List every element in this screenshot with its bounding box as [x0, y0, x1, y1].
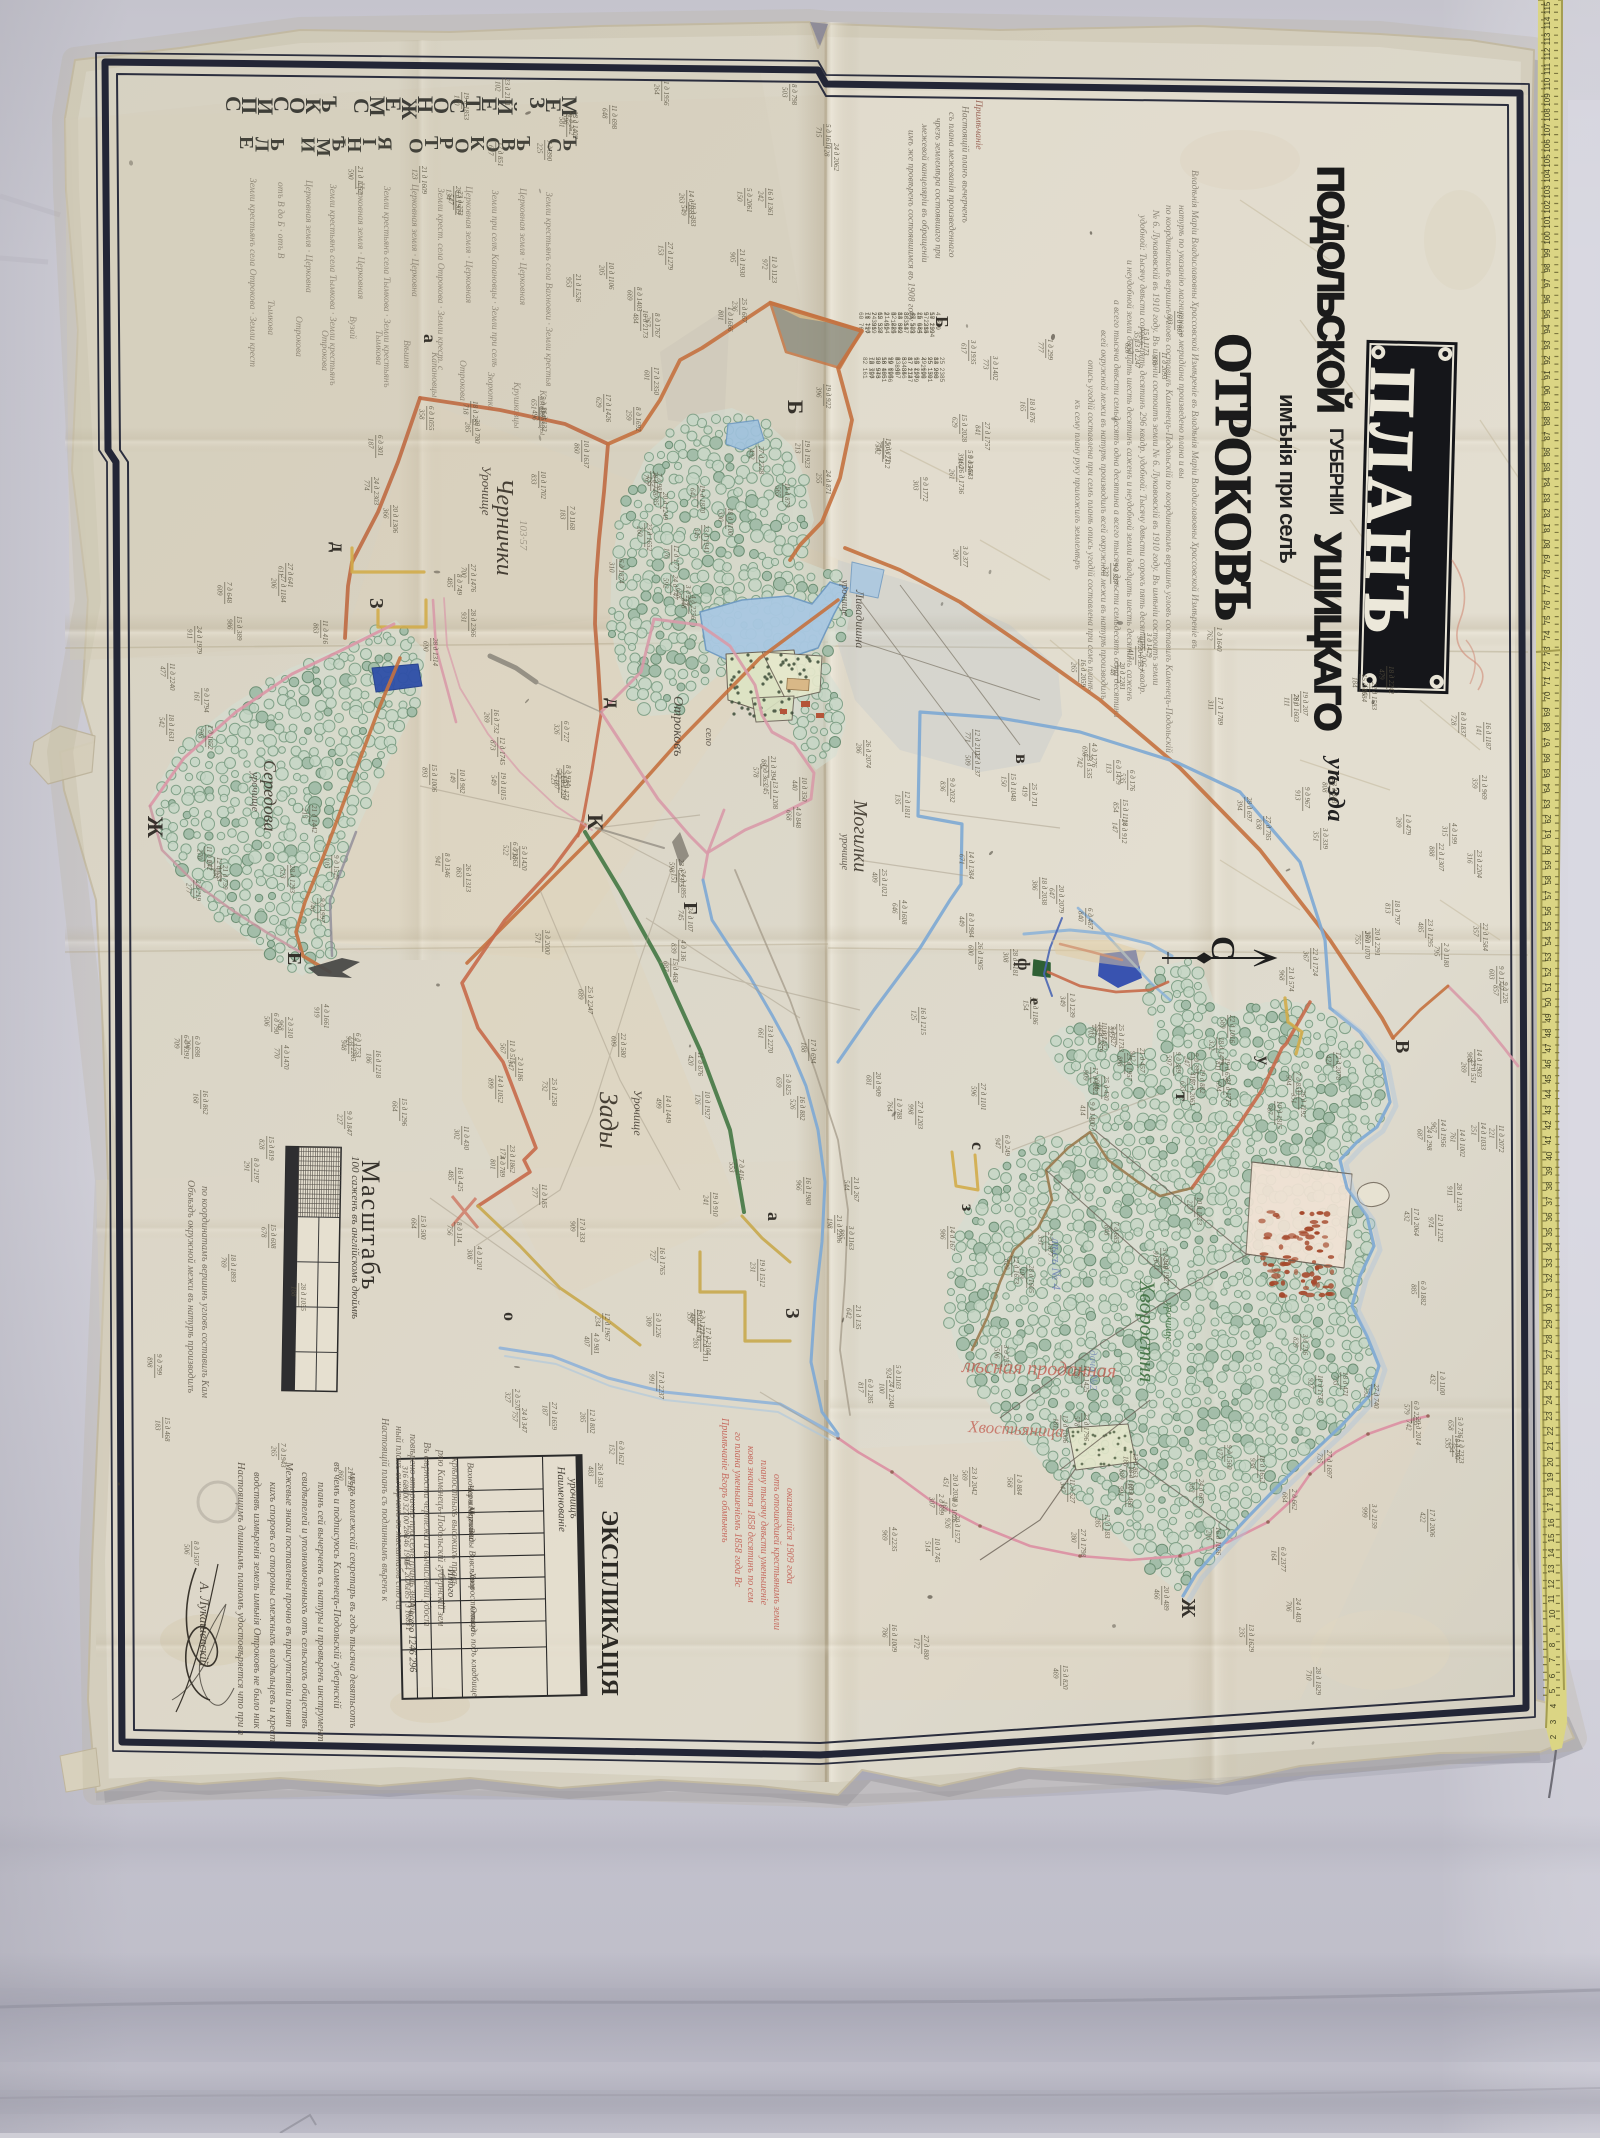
svg-text:10 д 1106: 10 д 1106 — [607, 262, 615, 290]
svg-text:11 д 2240: 11 д 2240 — [168, 663, 176, 691]
svg-text:671: 671 — [958, 854, 966, 865]
svg-text:549: 549 — [490, 775, 498, 786]
svg-text:81: 81 — [1543, 523, 1552, 532]
svg-text:94: 94 — [1543, 324, 1552, 333]
svg-text:съ плана межеванія произведенн: съ плана межеванія произведеннаго — [946, 112, 957, 258]
svg-text:76: 76 — [1543, 600, 1552, 609]
svg-text:3 д 235: 3 д 235 — [1002, 1344, 1010, 1367]
svg-text:706: 706 — [1285, 1601, 1293, 1612]
svg-text:в: в — [1012, 754, 1032, 764]
svg-text:1 д 299: 1 д 299 — [1046, 339, 1054, 361]
svg-text:357: 357 — [1472, 925, 1480, 937]
svg-text:414: 414 — [1079, 1105, 1087, 1116]
svg-text:12 д 2078: 12 д 2078 — [1334, 1052, 1342, 1081]
svg-text:115: 115 — [1543, 1, 1552, 14]
svg-text:27 д 1697: 27 д 1697 — [1325, 1450, 1333, 1479]
svg-text:27 д 1659: 27 д 1659 — [550, 1402, 558, 1431]
svg-text:95 179: 95 179 — [926, 357, 933, 379]
svg-text:39: 39 — [1545, 1166, 1554, 1175]
svg-text:13 д 2270: 13 д 2270 — [766, 1025, 774, 1054]
svg-text:17 д 694: 17 д 694 — [809, 1039, 817, 1064]
svg-text:23 д 2375: 23 д 2375 — [677, 859, 685, 888]
svg-text:ЭКСПЛИКАЦІЯ: ЭКСПЛИКАЦІЯ — [596, 1510, 622, 1696]
svg-text:421: 421 — [1325, 1055, 1333, 1066]
svg-text:123: 123 — [411, 169, 419, 180]
svg-text:898: 898 — [146, 1357, 154, 1368]
svg-text:урочище: урочище — [1163, 1301, 1175, 1342]
svg-text:811: 811 — [1214, 1061, 1222, 1071]
svg-text:21 д 135: 21 д 135 — [854, 1305, 862, 1330]
svg-text:Отводъ подъ кладбище: Отводъ подъ кладбище — [469, 1606, 481, 1696]
svg-text:4: 4 — [1549, 1703, 1558, 1708]
svg-text:477: 477 — [159, 666, 167, 677]
svg-text:687: 687 — [662, 961, 670, 972]
svg-text:15 д 2028: 15 д 2028 — [960, 414, 968, 443]
svg-text:22: 22 — [1546, 1426, 1555, 1435]
svg-text:15 д 820: 15 д 820 — [1061, 1665, 1069, 1690]
svg-text:658: 658 — [1447, 1420, 1455, 1431]
svg-text:17 д 2064: 17 д 2064 — [1412, 1208, 1420, 1237]
svg-text:20 д 1572: 20 д 1572 — [953, 1515, 961, 1544]
svg-text:21 д 574: 21 д 574 — [1287, 967, 1295, 992]
svg-text:187: 187 — [541, 1405, 549, 1416]
svg-text:986: 986 — [939, 1229, 947, 1240]
svg-text:177: 177 — [1216, 1448, 1224, 1459]
svg-text:565: 565 — [774, 486, 782, 497]
svg-text:26 д 1313: 26 д 1313 — [464, 864, 472, 893]
svg-text:259: 259 — [625, 410, 633, 421]
svg-text:11 д 2072: 11 д 2072 — [1497, 1125, 1505, 1153]
svg-text:205: 205 — [598, 265, 606, 276]
svg-text:83: 83 — [1543, 493, 1552, 502]
svg-text:251: 251 — [1470, 1125, 1478, 1136]
svg-text:280: 280 — [1070, 1532, 1078, 1543]
svg-text:3 д 1163: 3 д 1163 — [847, 1225, 855, 1251]
svg-text:579: 579 — [1403, 1404, 1411, 1415]
svg-text:188: 188 — [800, 1042, 808, 1053]
svg-text:25 д 1733: 25 д 1733 — [1117, 1024, 1125, 1053]
svg-text:всей окружной межи въ натурѣ п: всей окружной межи въ натурѣ производилъ… — [1098, 330, 1109, 700]
svg-text:20 д 2112: 20 д 2112 — [883, 441, 891, 469]
svg-text:З: З — [781, 1308, 803, 1319]
svg-text:25 д 1258: 25 д 1258 — [550, 1078, 558, 1107]
svg-text:50 576: 50 576 — [874, 357, 881, 379]
svg-text:19 д 207: 19 д 207 — [1301, 691, 1309, 716]
svg-text:8 д 934: 8 д 934 — [564, 765, 572, 787]
svg-text:Отрокова: Отрокова — [293, 316, 303, 357]
svg-text:13 д 1006: 13 д 1006 — [1061, 1415, 1069, 1444]
svg-text:8 д 1767: 8 д 1767 — [653, 313, 661, 338]
svg-text:22 д 1016: 22 д 1016 — [1228, 1015, 1236, 1044]
svg-text:126: 126 — [694, 1094, 702, 1105]
svg-text:УШИЦКАГО: УШИЦКАГО — [1307, 533, 1348, 731]
svg-text:9 д 1543: 9 д 1543 — [966, 455, 974, 480]
svg-text:885: 885 — [838, 1229, 846, 1240]
svg-text:24 д 2303: 24 д 2303 — [372, 477, 380, 506]
svg-text:67: 67 — [1543, 737, 1552, 746]
svg-text:6 д 1479: 6 д 1479 — [1114, 760, 1122, 785]
svg-text:349: 349 — [1059, 995, 1067, 1007]
svg-text:6 д 698: 6 д 698 — [193, 1036, 201, 1058]
svg-text:28 д 2366: 28 д 2366 — [469, 609, 477, 638]
svg-text:647: 647 — [1048, 888, 1056, 899]
svg-text:3 д 2159: 3 д 2159 — [1370, 1503, 1378, 1529]
svg-text:213: 213 — [301, 808, 309, 819]
svg-text:14 д 1033: 14 д 1033 — [1479, 1122, 1487, 1151]
svg-text:Хворостня: Хворостня — [1135, 1279, 1160, 1383]
svg-text:16 д 882: 16 д 882 — [798, 1096, 806, 1121]
svg-text:358: 358 — [418, 408, 426, 420]
svg-text:152: 152 — [608, 1444, 616, 1455]
svg-text:770: 770 — [273, 1048, 281, 1059]
svg-text:8 д 1837: 8 д 1837 — [1459, 712, 1467, 737]
svg-text:23 д 1862: 23 д 1862 — [508, 1145, 516, 1174]
svg-text:681: 681 — [865, 1075, 873, 1086]
svg-text:396: 396 — [815, 386, 823, 398]
svg-text:4 д 981: 4 д 981 — [592, 1333, 600, 1354]
svg-text:100: 100 — [1543, 231, 1552, 245]
svg-text:2 д 1180: 2 д 1180 — [1442, 943, 1450, 968]
svg-text:отъ отошедшей крестьянамъ земл: отъ отошедшей крестьянамъ земли — [771, 1474, 782, 1630]
svg-text:149: 149 — [449, 772, 457, 783]
svg-text:485: 485 — [1417, 922, 1425, 933]
svg-text:Масштабъ: Масштабъ — [356, 1160, 385, 1291]
svg-text:с: с — [968, 1142, 988, 1150]
svg-text:941: 941 — [434, 856, 442, 867]
svg-text:2 д 1186: 2 д 1186 — [516, 1057, 524, 1082]
svg-text:795: 795 — [1433, 946, 1441, 957]
svg-text:111: 111 — [1543, 62, 1552, 75]
svg-text:345: 345 — [693, 527, 701, 539]
svg-text:173: 173 — [499, 1148, 507, 1159]
svg-text:801: 801 — [717, 310, 725, 321]
svg-text:774: 774 — [363, 480, 371, 491]
svg-text:41: 41 — [1544, 1135, 1553, 1144]
svg-text:по координатамъ вершинъ угловъ: по координатамъ вершинъ угловъ составилъ… — [1163, 205, 1174, 753]
svg-text:18 д 790: 18 д 790 — [1453, 1435, 1461, 1460]
svg-text:732: 732 — [541, 1081, 549, 1092]
svg-text:88: 88 — [1543, 416, 1552, 425]
svg-text:863: 863 — [312, 623, 320, 634]
svg-text:19 д 1923: 19 д 1923 — [803, 440, 811, 469]
svg-text:Земли крестьянъ села Отрокова: Земли крестьянъ села Отрокова · Земли кр… — [247, 178, 257, 367]
svg-text:621: 621 — [1153, 1260, 1161, 1271]
svg-text:485: 485 — [446, 577, 454, 588]
svg-text:28 д 1181: 28 д 1181 — [1011, 949, 1019, 977]
svg-text:69: 69 — [1543, 707, 1552, 716]
svg-text:22 д 1307: 22 д 1307 — [1437, 843, 1445, 872]
svg-text:28 д 1605: 28 д 1605 — [1027, 1265, 1035, 1294]
svg-text:309: 309 — [645, 1315, 653, 1327]
svg-text:893: 893 — [421, 767, 429, 778]
svg-text:755: 755 — [1354, 934, 1362, 945]
svg-text:11 д 185: 11 д 185 — [540, 1184, 548, 1209]
svg-text:20 д 1249: 20 д 1249 — [661, 492, 669, 521]
svg-text:135: 135 — [646, 476, 654, 487]
svg-text:600: 600 — [967, 945, 975, 956]
svg-text:16 д 1026: 16 д 1026 — [1214, 1527, 1222, 1556]
svg-text:10 д 350: 10 д 350 — [800, 777, 808, 802]
svg-text:141: 141 — [1475, 725, 1483, 736]
svg-text:466: 466 — [1153, 1589, 1161, 1600]
svg-text:23 д 1796: 23 д 1796 — [1082, 1413, 1090, 1442]
svg-text:931: 931 — [460, 612, 468, 623]
svg-text:986: 986 — [226, 619, 234, 630]
svg-text:Церковная земля · Церковная: Церковная земля · Церковная — [355, 181, 365, 299]
svg-text:333: 333 — [1151, 354, 1159, 366]
svg-text:21 д 759: 21 д 759 — [221, 865, 229, 890]
svg-text:Настоящій планъ съ подлиннымъ: Настоящій планъ съ подлиннымъ вѣренъ к — [379, 1417, 390, 1602]
svg-text:829: 829 — [1003, 1259, 1011, 1270]
svg-text:5 д 1226: 5 д 1226 — [654, 1313, 662, 1338]
svg-text:65 528: 65 528 — [876, 312, 883, 334]
svg-text:153: 153 — [657, 245, 665, 256]
svg-text:24 д 871: 24 д 871 — [824, 470, 832, 495]
svg-text:999: 999 — [1361, 1507, 1369, 1518]
svg-text:Вузай: Вузай — [347, 316, 358, 339]
svg-text:ный планъ вычерченъ въ масштаб: ный планъ вычерченъ въ масштабѣ сто са — [393, 1426, 404, 1610]
svg-text:756: 756 — [446, 1225, 454, 1236]
svg-text:125: 125 — [910, 1010, 918, 1021]
svg-text:839: 839 — [670, 943, 678, 954]
svg-text:20 д 1306: 20 д 1306 — [391, 505, 399, 534]
svg-text:8 д 798: 8 д 798 — [790, 84, 798, 106]
svg-text:9 д 1560: 9 д 1560 — [1225, 1445, 1233, 1470]
svg-text:27 д 2228: 27 д 2228 — [757, 446, 765, 475]
svg-text:322: 322 — [1208, 1039, 1216, 1051]
svg-text:26 д 1192: 26 д 1192 — [1299, 1090, 1307, 1118]
svg-text:15 д 468: 15 д 468 — [163, 1417, 171, 1442]
svg-text:по координатамъ вершинъ угловъ: по координатамъ вершинъ угловъ составилъ… — [199, 1186, 210, 1399]
svg-text:опись угодій составлена при се: опись угодій составлена при семъ планѣ о… — [1085, 360, 1096, 692]
svg-text:74: 74 — [1543, 630, 1552, 639]
svg-text:а: а — [764, 1212, 784, 1221]
svg-text:1 д 1052: 1 д 1052 — [206, 725, 214, 750]
svg-text:40: 40 — [1545, 1151, 1554, 1160]
svg-text:21 д 1526: 21 д 1526 — [574, 274, 582, 303]
svg-text:669: 669 — [626, 290, 634, 301]
svg-text:136: 136 — [1073, 1368, 1081, 1379]
svg-text:161: 161 — [193, 691, 201, 702]
svg-text:21 д 1930: 21 д 1930 — [738, 249, 746, 278]
svg-text:2 д 219: 2 д 219 — [194, 880, 202, 902]
svg-text:432: 432 — [1429, 1374, 1437, 1385]
svg-text:727: 727 — [649, 1250, 657, 1261]
svg-text:20: 20 — [1546, 1457, 1555, 1466]
svg-text:24 д 347: 24 д 347 — [520, 1408, 528, 1433]
svg-text:315: 315 — [1441, 825, 1449, 837]
svg-text:Середова: Середова — [260, 760, 280, 831]
svg-text:994: 994 — [1285, 1075, 1293, 1086]
svg-text:150: 150 — [1000, 776, 1008, 787]
svg-text:542: 542 — [158, 717, 166, 728]
svg-text:20 д 2079: 20 д 2079 — [1057, 885, 1065, 914]
svg-text:23 д 1941: 23 д 1941 — [702, 525, 710, 553]
svg-text:601: 601 — [643, 370, 651, 381]
svg-text:19 д 1512: 19 д 1512 — [758, 1259, 766, 1288]
svg-text:42: 42 — [1544, 1120, 1553, 1129]
svg-text:506: 506 — [263, 1016, 271, 1027]
svg-text:9 д 1997: 9 д 1997 — [318, 898, 326, 923]
svg-text:12 д 1967: 12 д 1967 — [603, 1313, 611, 1342]
svg-text:Наименованіе: Наименованіе — [555, 1465, 568, 1532]
svg-text:7 д 416: 7 д 416 — [737, 1159, 745, 1181]
svg-text:15 д 468: 15 д 468 — [671, 958, 679, 983]
svg-text:367: 367 — [1302, 950, 1310, 962]
svg-text:18 д 1652: 18 д 1652 — [1258, 1455, 1266, 1484]
svg-text:78: 78 — [1543, 569, 1552, 578]
svg-text:689: 689 — [577, 989, 585, 1000]
svg-text:Отрокова: Отрокова — [319, 330, 329, 371]
svg-text:26 д 132: 26 д 132 — [540, 407, 548, 432]
svg-text:544: 544 — [843, 1180, 851, 1191]
svg-text:11: 11 — [1547, 1594, 1556, 1603]
svg-text:Б: Б — [783, 400, 808, 415]
svg-text:347: 347 — [1059, 1481, 1067, 1493]
svg-text:245: 245 — [762, 784, 770, 795]
svg-text:307: 307 — [928, 1496, 936, 1508]
svg-text:15 д 1173: 15 д 1173 — [1142, 328, 1150, 356]
svg-text:535: 535 — [1444, 1438, 1452, 1449]
svg-text:10 д 468: 10 д 468 — [1126, 1483, 1134, 1508]
svg-text:269: 269 — [1460, 1062, 1468, 1073]
svg-text:Вѣшня: Вѣшня — [401, 340, 411, 368]
svg-text:909: 909 — [1082, 1070, 1090, 1081]
svg-text:100: 100 — [878, 1383, 886, 1394]
svg-text:оказавшійся 1909 года: оказавшійся 1909 года — [784, 1488, 795, 1584]
svg-text:968: 968 — [1278, 970, 1286, 981]
svg-text:82 161: 82 161 — [861, 357, 868, 379]
svg-text:432: 432 — [1403, 1211, 1411, 1222]
svg-text:14 д 1052: 14 д 1052 — [496, 1075, 504, 1104]
svg-text:17 д 851: 17 д 851 — [496, 142, 504, 167]
svg-text:13 д 1402: 13 д 1402 — [571, 111, 579, 140]
svg-text:777: 777 — [1037, 342, 1045, 353]
svg-text:18 д 1631: 18 д 1631 — [167, 714, 175, 742]
svg-text:27 д 1203: 27 д 1203 — [916, 1101, 924, 1130]
svg-text:19 д 441: 19 д 441 — [695, 1309, 703, 1334]
svg-text:833: 833 — [530, 474, 538, 485]
svg-text:183: 183 — [559, 509, 567, 520]
svg-text:24 д 747: 24 д 747 — [671, 575, 679, 600]
svg-text:30: 30 — [1545, 1303, 1554, 1312]
svg-text:104: 104 — [1543, 169, 1552, 183]
svg-text:603: 603 — [1166, 314, 1174, 325]
svg-text:206: 206 — [270, 578, 278, 589]
svg-text:27 д 1279: 27 д 1279 — [666, 242, 674, 271]
svg-text:12 д 1745: 12 д 1745 — [498, 737, 506, 766]
svg-text:28 д 1055: 28 д 1055 — [299, 1283, 307, 1312]
svg-text:29: 29 — [1545, 1319, 1554, 1328]
svg-text:9 д 2032: 9 д 2032 — [948, 778, 956, 803]
svg-text:С: С — [1204, 936, 1241, 961]
svg-text:78 196: 78 196 — [864, 312, 871, 334]
svg-text:27 д 1184: 27 д 1184 — [279, 575, 287, 603]
svg-text:28 д 1314: 28 д 1314 — [431, 638, 439, 667]
svg-text:Я: Я — [374, 136, 396, 151]
svg-text:20 д 2038: 20 д 2038 — [951, 1474, 959, 1503]
svg-text:285: 285 — [464, 422, 472, 433]
svg-text:235: 235 — [1238, 1627, 1246, 1638]
svg-text:728: 728 — [1450, 715, 1458, 726]
svg-text:20 д 2291: 20 д 2291 — [1373, 928, 1381, 956]
svg-text:938: 938 — [1249, 1458, 1257, 1469]
svg-text:Капановцы: Капановцы — [429, 351, 439, 398]
svg-text:172: 172 — [913, 1638, 921, 1649]
svg-text:112: 112 — [1543, 47, 1552, 60]
svg-text:17 д 2111: 17 д 2111 — [701, 1335, 709, 1362]
svg-text:549: 549 — [680, 205, 688, 216]
svg-text:668: 668 — [785, 810, 793, 821]
svg-text:68: 68 — [1543, 722, 1552, 731]
svg-text:Земли при селѣ Капановцы · Зем: Земли при селѣ Капановцы · Земли при сел… — [489, 190, 499, 368]
svg-text:808: 808 — [1321, 782, 1329, 793]
svg-text:15 д 1048: 15 д 1048 — [1009, 773, 1017, 802]
svg-text:247: 247 — [1183, 1056, 1191, 1067]
svg-text:483: 483 — [587, 1466, 595, 1477]
svg-text:Ь: Ь — [266, 138, 288, 151]
svg-text:592: 592 — [662, 578, 670, 589]
svg-text:15 д 1006: 15 д 1006 — [430, 764, 438, 793]
svg-text:Могилки: Могилки — [849, 799, 871, 872]
svg-text:506: 506 — [183, 1544, 191, 1555]
svg-text:265: 265 — [1070, 662, 1078, 673]
svg-text:260: 260 — [636, 526, 644, 537]
svg-text:35: 35 — [1545, 1227, 1554, 1236]
svg-text:14: 14 — [1547, 1548, 1556, 1557]
svg-text:27 д 880: 27 д 880 — [922, 1635, 930, 1660]
svg-text:6 д 1882: 6 д 1882 — [1419, 1281, 1427, 1306]
svg-text:51: 51 — [1544, 982, 1553, 991]
svg-text:16 д 862: 16 д 862 — [201, 1090, 209, 1115]
svg-text:786: 786 — [881, 1627, 889, 1638]
svg-text:Отрокова: Отрокова — [457, 360, 467, 401]
svg-text:26 д 1905: 26 д 1905 — [976, 942, 984, 971]
svg-text:351: 351 — [1312, 830, 1320, 842]
svg-text:327: 327 — [504, 1391, 512, 1403]
svg-text:крѣпостныхъ высокихъ правъ: крѣпостныхъ высокихъ правъ — [449, 1458, 460, 1586]
svg-text:Примѣчаніе Вгоръ обмѣненъ: Примѣчаніе Вгоръ обмѣненъ — [719, 1417, 730, 1543]
svg-text:99 898: 99 898 — [887, 357, 894, 379]
svg-text:12 д 183: 12 д 183 — [1103, 1514, 1111, 1539]
svg-text:у: у — [1254, 1056, 1274, 1065]
svg-text:817: 817 — [857, 1382, 865, 1393]
svg-text:484: 484 — [632, 313, 640, 324]
svg-text:д: д — [602, 698, 624, 708]
svg-text:13 д 2247: 13 д 2247 — [1133, 340, 1141, 369]
svg-text:Ж: Ж — [143, 816, 168, 838]
svg-text:326: 326 — [553, 723, 561, 735]
svg-text:291: 291 — [243, 1161, 251, 1172]
svg-text:813: 813 — [1384, 903, 1392, 914]
svg-text:764: 764 — [886, 1101, 894, 1112]
svg-text:135: 135 — [894, 794, 902, 805]
svg-text:47 529: 47 529 — [909, 312, 916, 334]
svg-text:762: 762 — [1206, 630, 1214, 641]
svg-text:617: 617 — [487, 145, 495, 156]
svg-text:2 д 1377: 2 д 1377 — [1046, 1232, 1054, 1257]
svg-text:596: 596 — [562, 114, 570, 125]
svg-text:678: 678 — [260, 1227, 268, 1238]
svg-text:449: 449 — [958, 916, 966, 927]
svg-text:97: 97 — [1543, 278, 1552, 287]
svg-text:5 д 1610: 5 д 1610 — [824, 124, 832, 149]
svg-text:617: 617 — [960, 343, 968, 354]
svg-text:7: 7 — [1548, 1657, 1557, 1662]
svg-text:241: 241 — [702, 1195, 710, 1206]
svg-text:Б: Б — [932, 316, 952, 328]
svg-text:6 д 1285: 6 д 1285 — [866, 1379, 874, 1404]
